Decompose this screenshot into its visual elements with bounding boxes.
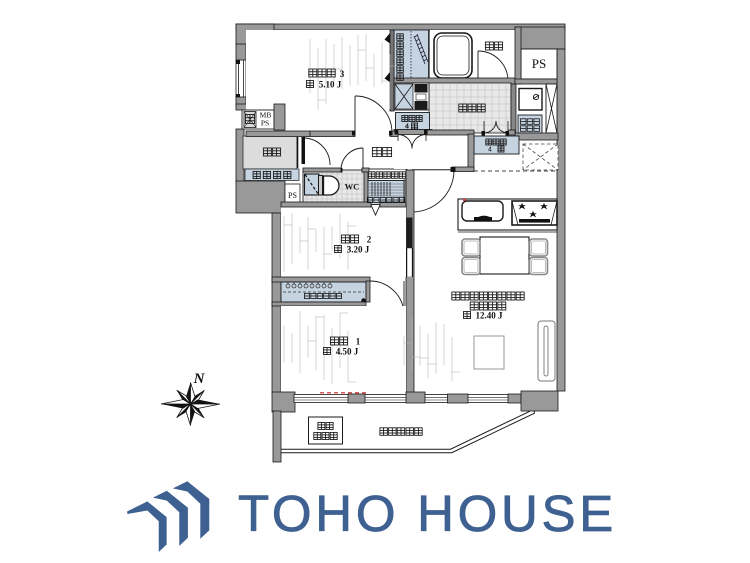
svg-text:PS: PS bbox=[261, 119, 269, 128]
svg-text:TOHO HOUSE: TOHO HOUSE bbox=[238, 485, 617, 542]
svg-text:1: 1 bbox=[356, 337, 361, 347]
svg-text:PS: PS bbox=[288, 191, 297, 200]
svg-text:4.50 J: 4.50 J bbox=[336, 347, 359, 357]
svg-text:N: N bbox=[193, 371, 206, 387]
svg-text:4: 4 bbox=[488, 147, 492, 154]
svg-text:PS: PS bbox=[532, 56, 546, 71]
svg-text:4: 4 bbox=[405, 124, 409, 131]
svg-text:3.20 J: 3.20 J bbox=[347, 245, 370, 255]
svg-text:2: 2 bbox=[367, 235, 372, 245]
svg-text:5.10 J: 5.10 J bbox=[319, 80, 342, 90]
svg-text:3: 3 bbox=[340, 69, 345, 79]
svg-text:12.40 J: 12.40 J bbox=[476, 311, 504, 321]
svg-text:WC: WC bbox=[345, 182, 360, 192]
